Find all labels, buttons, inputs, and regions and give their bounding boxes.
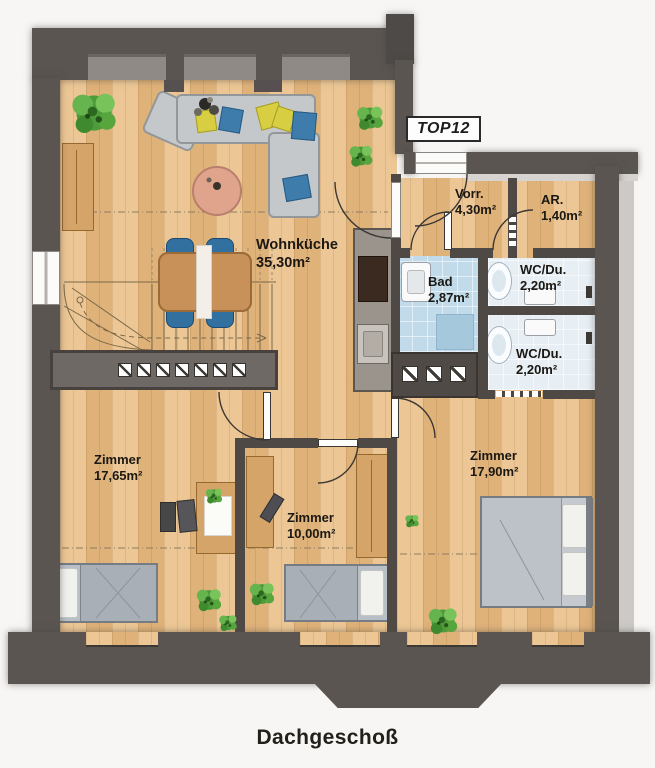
room-label-zimmer3: Zimmer 17,90m² bbox=[470, 448, 518, 481]
door-leaf-zimmer1 bbox=[263, 392, 271, 440]
bay-projection bbox=[313, 682, 503, 708]
wall-bath-top bbox=[533, 248, 595, 258]
window-niche bbox=[532, 632, 584, 647]
room-label-bad: Bad 2,87m² bbox=[428, 274, 469, 307]
room-label-abstellraum: AR. 1,40m² bbox=[541, 192, 582, 225]
floor-plan: Wohnküche 35,30m² Vorr. 4,30m² AR. 1,40m… bbox=[0, 0, 655, 768]
kitchen-counter bbox=[353, 228, 391, 392]
wc2-sink bbox=[524, 319, 556, 336]
window-niche bbox=[86, 632, 158, 647]
window bbox=[32, 251, 60, 305]
room-label-wc2: WC/Du. 2,20m² bbox=[516, 346, 562, 379]
radiator bbox=[586, 286, 592, 298]
toilet-bowl bbox=[492, 334, 506, 356]
glass-block bbox=[175, 363, 189, 377]
wall-zimmer1-2 bbox=[235, 448, 245, 632]
door-opening-living-vorr bbox=[391, 182, 401, 238]
shaft-hatch bbox=[402, 366, 418, 382]
sideboard bbox=[62, 143, 94, 231]
stove bbox=[358, 256, 388, 302]
room-label-zimmer2: Zimmer 10,00m² bbox=[287, 510, 335, 543]
sideboard-line bbox=[76, 150, 77, 224]
desk-paper bbox=[204, 496, 232, 536]
pillow-blue bbox=[291, 111, 317, 141]
wall-bad-wc bbox=[478, 256, 488, 398]
wall-pier bbox=[164, 80, 184, 92]
toilet-bowl bbox=[492, 270, 506, 292]
blanket bbox=[482, 498, 562, 606]
washbasin-bowl bbox=[407, 270, 425, 294]
shaft-hatch bbox=[450, 366, 466, 382]
door-leaf-bad bbox=[444, 212, 452, 250]
dormer-window bbox=[184, 54, 256, 80]
wardrobe bbox=[356, 454, 388, 558]
pillow bbox=[360, 570, 384, 616]
exterior-wall-right bbox=[595, 166, 619, 634]
pillow bbox=[58, 568, 78, 618]
glass-block bbox=[232, 363, 246, 377]
door-leaf-hall bbox=[391, 398, 399, 438]
shaft-hatch bbox=[426, 366, 442, 382]
sliding-door-ar bbox=[509, 214, 516, 246]
door-leaf-zimmer2 bbox=[318, 439, 358, 447]
window-niche bbox=[407, 632, 477, 647]
floor-title: Dachgeschoß bbox=[0, 726, 655, 750]
room-label-vorraum: Vorr. 4,30m² bbox=[455, 186, 496, 219]
room-label-wohnkueche: Wohnküche 35,30m² bbox=[256, 236, 338, 272]
wall-living-vorr bbox=[391, 174, 401, 182]
entrance-door-opening bbox=[415, 152, 467, 174]
dormer-window bbox=[282, 54, 350, 80]
eave-strip-right bbox=[619, 181, 634, 633]
unit-label: TOP12 bbox=[406, 116, 481, 142]
glass-block bbox=[194, 363, 208, 377]
radiator bbox=[586, 332, 592, 344]
glass-block bbox=[156, 363, 170, 377]
kitchen-sink-basin bbox=[363, 331, 383, 357]
table-runner bbox=[196, 245, 212, 319]
wall-zimmer2-top bbox=[235, 438, 318, 448]
pillow-yellow bbox=[195, 109, 218, 134]
window-niche bbox=[300, 632, 380, 647]
exterior-wall-topright bbox=[404, 152, 415, 174]
glass-block bbox=[137, 363, 151, 377]
wall-bath-top bbox=[391, 248, 410, 258]
room-label-wc1: WC/Du. 2,20m² bbox=[520, 262, 566, 295]
blanket bbox=[286, 566, 358, 620]
wall-wc2-bottom bbox=[478, 390, 495, 399]
sofa-right-section bbox=[268, 132, 320, 218]
blanket bbox=[80, 565, 156, 621]
wall-wc2-bottom bbox=[543, 390, 595, 399]
wall-pier bbox=[254, 80, 282, 92]
wall-wc-divider bbox=[488, 306, 595, 315]
pillow bbox=[562, 504, 588, 548]
glass-block bbox=[118, 363, 132, 377]
pillow-blue bbox=[218, 106, 244, 133]
wall-kitchen-bad bbox=[391, 258, 400, 352]
wall-zimmer2-top bbox=[358, 438, 397, 448]
glass-block bbox=[213, 363, 227, 377]
headboard bbox=[586, 498, 593, 606]
wall-zimmer2-3 bbox=[387, 448, 397, 632]
coffee-table bbox=[192, 166, 242, 216]
sliding-door-wc2 bbox=[496, 391, 542, 397]
desk-chair bbox=[160, 502, 176, 532]
room-label-zimmer1: Zimmer 17,65m² bbox=[94, 452, 142, 485]
pillow-blue bbox=[282, 174, 312, 202]
desk-chair bbox=[176, 499, 197, 533]
wardrobe-line bbox=[371, 460, 372, 552]
chimney bbox=[386, 14, 414, 64]
dormer-window bbox=[88, 54, 166, 80]
pillow bbox=[562, 552, 588, 596]
